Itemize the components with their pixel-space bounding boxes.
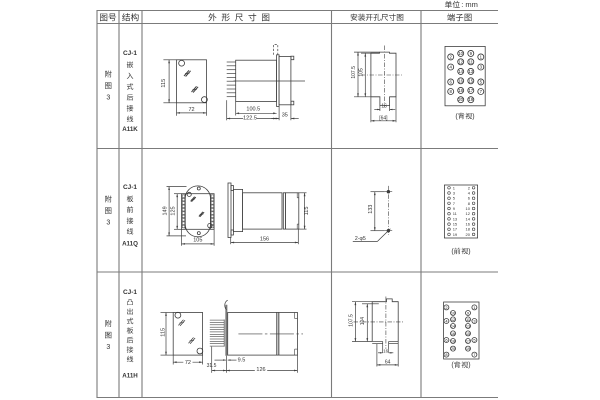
svg-text:107.5: 107.5 (351, 66, 357, 79)
svg-text:18: 18 (458, 88, 463, 93)
svg-text:3: 3 (106, 95, 110, 102)
svg-text:2-φ5: 2-φ5 (355, 236, 366, 242)
svg-text:3: 3 (106, 220, 110, 227)
svg-text:13: 13 (468, 69, 473, 74)
svg-text:A11Q: A11Q (122, 240, 138, 247)
svg-text:7: 7 (473, 352, 475, 357)
svg-text:17: 17 (466, 338, 470, 343)
svg-text:): ) (472, 114, 474, 121)
svg-text:19: 19 (453, 232, 458, 237)
svg-text:12: 12 (451, 317, 455, 322)
svg-text:5: 5 (473, 337, 475, 342)
svg-text:9: 9 (467, 310, 469, 315)
svg-text:CJ-1: CJ-1 (123, 289, 137, 296)
svg-text:10: 10 (458, 51, 463, 56)
svg-text:8: 8 (445, 352, 447, 357)
svg-text:3: 3 (473, 318, 475, 323)
svg-text:[64]: [64] (379, 116, 388, 122)
svg-text:115: 115 (161, 328, 167, 337)
svg-text:11: 11 (466, 317, 470, 322)
svg-text:126: 126 (256, 367, 265, 373)
svg-text:3: 3 (106, 344, 110, 351)
svg-text:6: 6 (445, 337, 447, 342)
svg-text:133: 133 (368, 205, 374, 214)
svg-text:125: 125 (171, 206, 177, 215)
svg-text:105: 105 (193, 238, 202, 244)
svg-text:35: 35 (282, 112, 288, 118)
svg-text:16: 16 (383, 349, 389, 354)
svg-text:18: 18 (451, 338, 455, 343)
svg-text:16: 16 (451, 331, 455, 336)
svg-text:20: 20 (466, 232, 471, 237)
svg-text:12: 12 (458, 59, 463, 64)
svg-text:): ) (468, 249, 470, 256)
svg-text:11: 11 (469, 59, 474, 64)
svg-text:): ) (468, 362, 470, 369)
svg-text:2: 2 (445, 305, 447, 310)
svg-text:72: 72 (188, 107, 194, 113)
svg-text:15: 15 (466, 331, 470, 336)
svg-text:122.5: 122.5 (243, 115, 257, 121)
svg-text:CJ-1: CJ-1 (123, 184, 137, 191)
svg-text:19: 19 (466, 346, 470, 351)
svg-text:64: 64 (385, 360, 391, 366)
svg-text:20: 20 (458, 97, 463, 102)
svg-text:156: 156 (260, 236, 269, 242)
svg-text:31.5: 31.5 (207, 363, 217, 369)
svg-text:72: 72 (185, 360, 191, 366)
svg-text:107.5: 107.5 (349, 314, 355, 327)
svg-text:115: 115 (161, 79, 167, 88)
svg-text:9.5: 9.5 (238, 358, 246, 364)
svg-text:CJ-1: CJ-1 (123, 50, 137, 57)
svg-text:13: 13 (466, 323, 470, 328)
svg-text:100.5: 100.5 (246, 106, 260, 112)
svg-text:: mm: : mm (461, 0, 478, 9)
svg-text:104: 104 (360, 317, 366, 326)
svg-text:115: 115 (304, 207, 310, 216)
svg-text:16: 16 (381, 104, 387, 110)
svg-text:1: 1 (473, 305, 475, 310)
svg-text:105: 105 (359, 68, 365, 77)
svg-text:15: 15 (468, 78, 473, 83)
svg-text:17: 17 (468, 88, 473, 93)
svg-text:19: 19 (468, 97, 473, 102)
svg-text:A11K: A11K (122, 126, 138, 133)
svg-text:A11H: A11H (122, 373, 138, 380)
svg-text:149: 149 (163, 206, 169, 215)
svg-text:16: 16 (458, 78, 463, 83)
svg-text:14: 14 (458, 69, 463, 74)
